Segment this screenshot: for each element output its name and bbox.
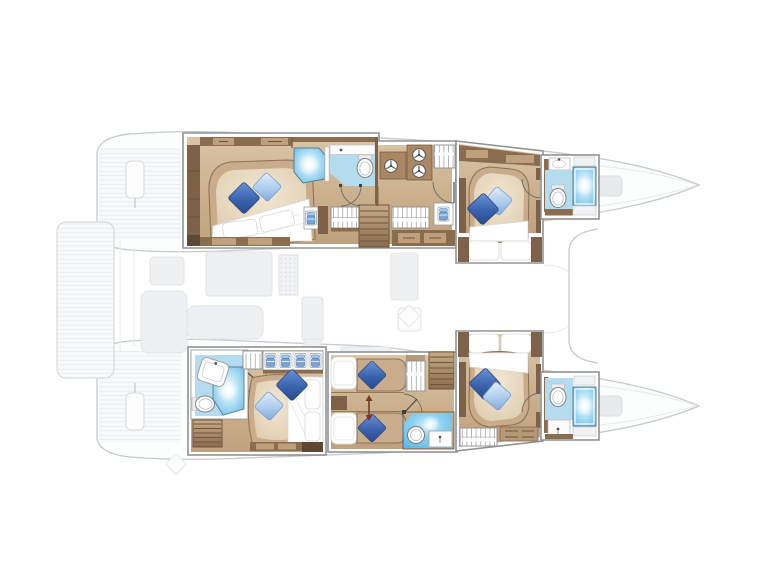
wardrobe [187,145,200,235]
port-forward-bathroom [544,157,596,216]
nightstand [531,332,542,357]
nightstand [458,332,469,357]
cabinet [331,396,347,410]
nav-cabinet [391,253,418,300]
shower-icon [423,416,440,433]
stbd-forward-cabin [458,332,542,447]
cockpit-sofa [141,291,187,353]
mattress-cushion [305,412,320,441]
shelf [406,355,425,361]
nightstand [458,237,469,262]
galley-counter [206,252,272,296]
toilet-icon [550,384,566,407]
mattress-cushion [501,334,531,353]
canvas-background [0,0,768,576]
mattress-cushion [469,334,499,353]
port-hull-interior [183,133,599,263]
hanging-locker-icon [406,361,425,391]
shower-divider [325,147,329,181]
aft-swim-platform [57,222,114,378]
stairs-icon [429,352,454,389]
cockpit-bench [187,306,263,339]
sink-icon [548,420,570,435]
bath-shelf [574,157,595,166]
cockpit-table [150,257,184,285]
mattress-cushion [501,241,531,260]
toilet-icon [357,155,373,178]
nightstand [531,237,542,262]
galley-island [302,297,323,341]
starboard-deck-locker [126,393,144,430]
sink-icon [429,431,452,447]
drawer-strip [500,427,538,441]
hanging-locker-icon [243,351,262,369]
galley-stove [279,255,298,295]
floorplan-svg: Catamaran layout floor plan Top-down dec… [0,0,768,576]
toilet-icon [550,185,566,208]
starboard-bow-pad [598,396,622,416]
vent-hatch-icon [385,160,398,173]
hanging-locker-icon [434,145,455,168]
port-bow-pad [598,176,622,196]
vent-hatch-icon [413,149,426,162]
floorplan-page: Catamaran layout floor plan Top-down dec… [0,0,768,576]
sink-icon [330,145,375,155]
nightstand [318,206,328,234]
vent-hatch-icon [413,165,426,178]
bath-shelf [574,376,595,385]
port-deck-locker [126,161,144,198]
toilet-icon [192,396,215,412]
mattress-cushion [469,241,499,260]
toilet-icon [408,427,425,444]
